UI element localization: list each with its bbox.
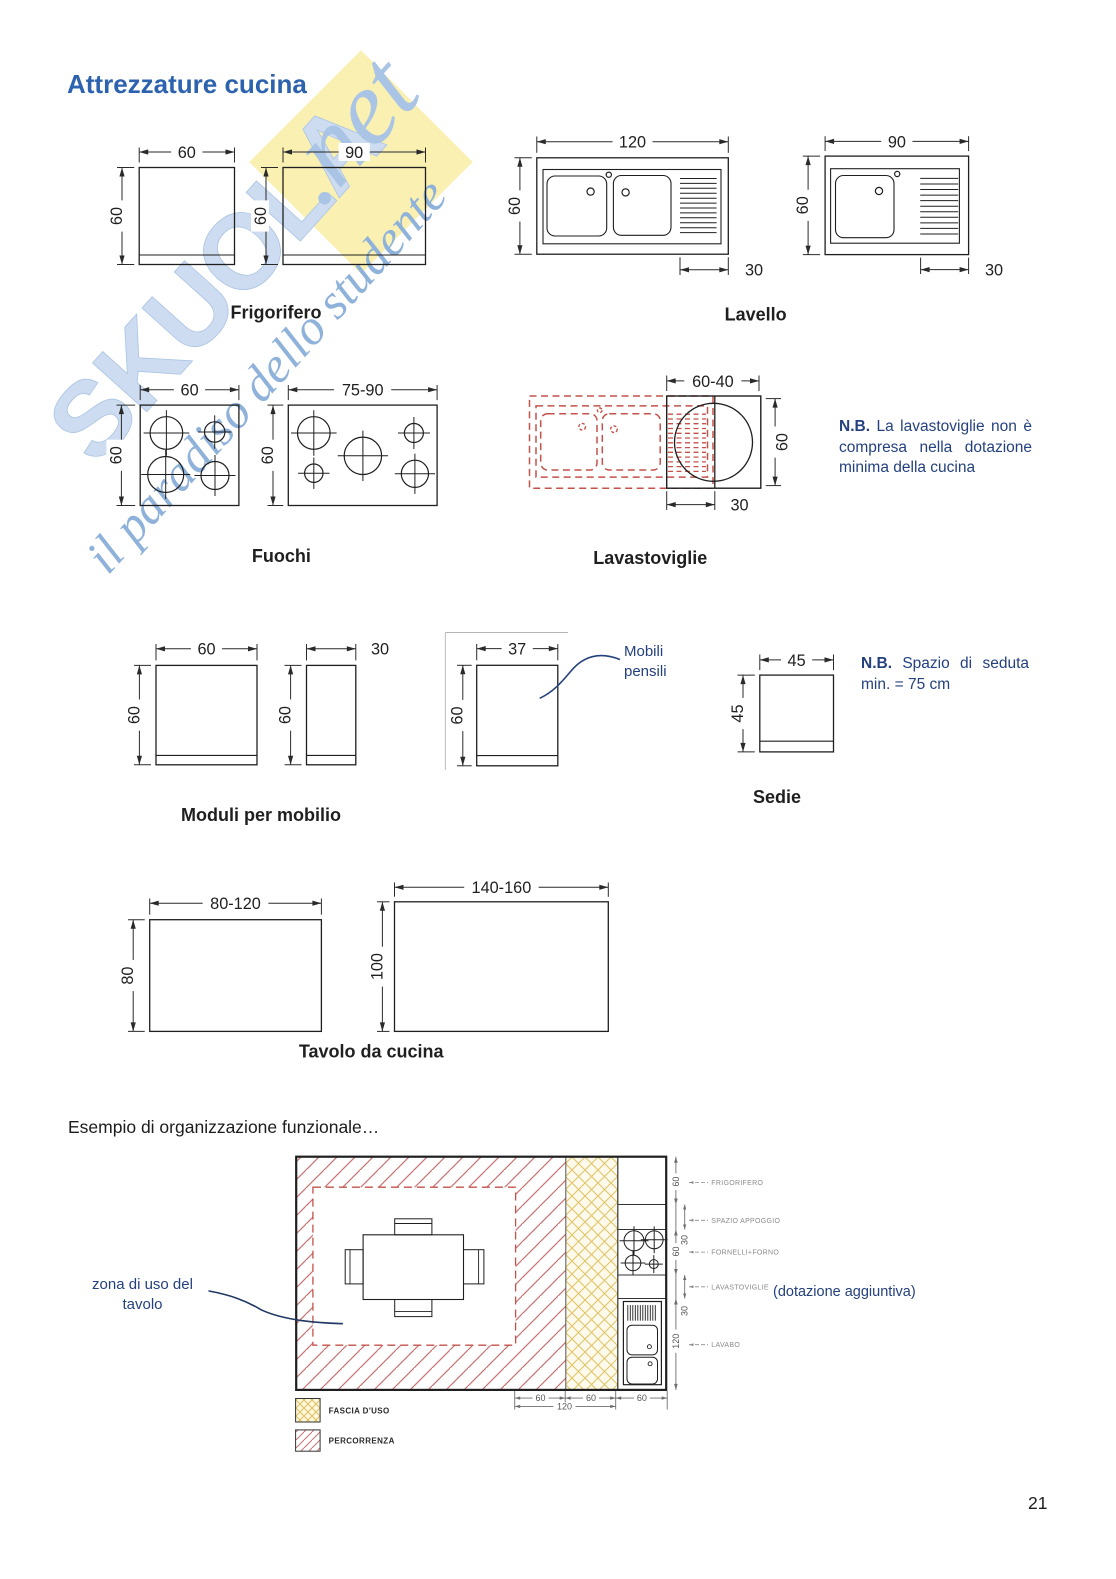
svg-text:60: 60 [178,144,196,162]
svg-text:60: 60 [181,382,199,400]
svg-text:60: 60 [449,706,467,724]
svg-text:Lavastoviglie: Lavastoviglie [593,548,707,568]
svg-text:75-90: 75-90 [342,382,384,400]
svg-text:Tavolo da cucina: Tavolo da cucina [299,1042,445,1062]
svg-text:37: 37 [508,641,526,659]
svg-text:60: 60 [107,446,125,464]
svg-text:SPAZIO APPOGGIO: SPAZIO APPOGGIO [711,1218,780,1225]
svg-text:45: 45 [788,652,806,670]
svg-text:60: 60 [277,706,295,724]
svg-text:FASCIA D'USO: FASCIA D'USO [329,1406,390,1415]
svg-text:60: 60 [671,1246,681,1256]
svg-text:30: 30 [371,641,389,659]
svg-text:60: 60 [671,1177,681,1187]
svg-text:60: 60 [108,207,126,225]
svg-text:60: 60 [535,1393,545,1403]
svg-text:30: 30 [731,496,749,514]
svg-text:60: 60 [125,706,143,724]
svg-text:LAVABO: LAVABO [711,1342,740,1349]
svg-text:30: 30 [985,261,1003,279]
svg-text:Lavello: Lavello [725,305,787,325]
svg-text:80-120: 80-120 [210,895,261,913]
svg-text:Frigorifero: Frigorifero [230,303,321,323]
svg-text:90: 90 [888,133,906,151]
svg-text:140-160: 140-160 [472,879,532,897]
svg-text:30: 30 [680,1306,690,1316]
svg-text:30: 30 [745,262,763,280]
svg-text:60-40: 60-40 [692,373,734,391]
svg-text:60: 60 [506,197,524,215]
svg-text:120: 120 [619,134,646,152]
svg-text:60: 60 [773,433,791,451]
svg-text:LAVASTOVIGLIE: LAVASTOVIGLIE [711,1284,769,1291]
svg-text:60: 60 [794,196,812,214]
svg-text:Sedie: Sedie [753,787,801,807]
svg-text:60: 60 [197,641,215,659]
svg-text:100: 100 [368,953,386,980]
svg-text:60: 60 [252,207,270,225]
svg-text:Moduli per mobilio: Moduli per mobilio [181,805,341,825]
svg-text:45: 45 [729,704,747,722]
svg-text:FORNELLI+FORNO: FORNELLI+FORNO [711,1250,779,1257]
svg-text:FRIGORIFERO: FRIGORIFERO [711,1180,763,1187]
svg-text:120: 120 [557,1401,572,1411]
svg-text:30: 30 [680,1235,690,1245]
svg-text:80: 80 [119,967,137,985]
svg-text:60: 60 [586,1393,596,1403]
svg-text:120: 120 [671,1334,681,1349]
svg-text:60: 60 [259,446,277,464]
svg-text:PERCORRENZA: PERCORRENZA [329,1436,395,1445]
svg-text:90: 90 [345,144,363,162]
svg-text:Fuochi: Fuochi [252,546,311,566]
svg-text:60: 60 [637,1393,647,1403]
